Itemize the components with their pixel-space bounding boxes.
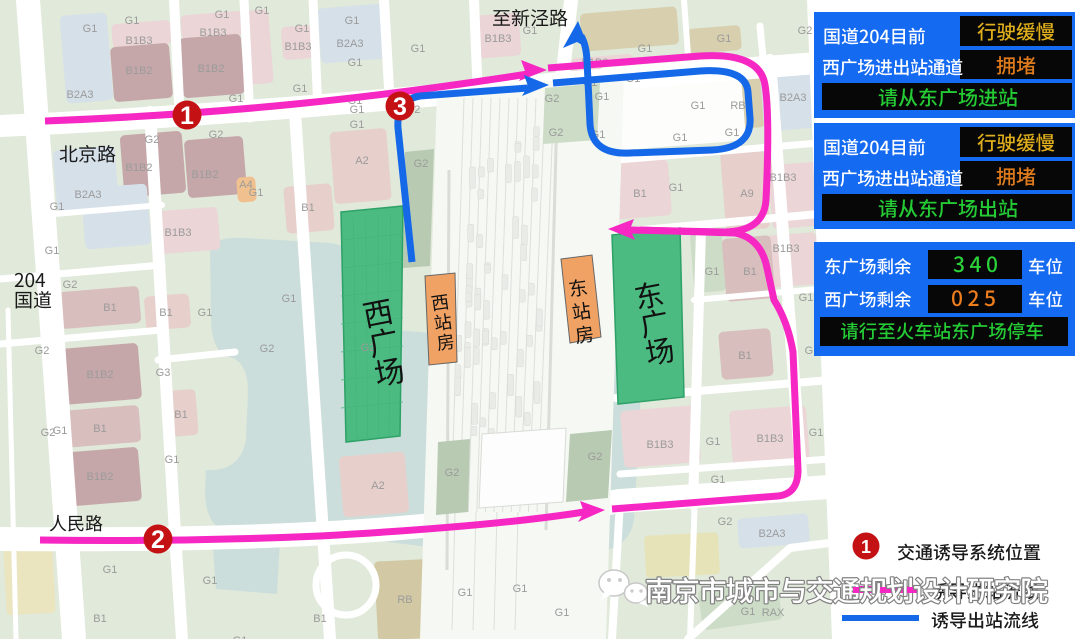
svg-text:B1: B1 [174, 409, 187, 421]
svg-text:B1: B1 [633, 188, 646, 200]
svg-text:B1B3: B1B3 [773, 243, 800, 255]
svg-text:B1: B1 [301, 202, 314, 214]
svg-text:A2: A2 [371, 480, 384, 492]
svg-text:B1: B1 [103, 302, 116, 314]
svg-text:G1: G1 [669, 182, 684, 194]
svg-text:B1B3: B1B3 [770, 172, 797, 184]
svg-text:G2: G2 [145, 134, 160, 146]
svg-text:B1: B1 [738, 350, 751, 362]
svg-text:G2: G2 [209, 129, 224, 141]
svg-text:G1: G1 [691, 100, 706, 112]
svg-text:G1: G1 [717, 33, 732, 45]
svg-text:B1B2: B1B2 [126, 162, 153, 174]
svg-text:G1: G1 [555, 607, 570, 619]
svg-text:G1: G1 [673, 132, 688, 144]
svg-text:G1: G1 [103, 564, 118, 576]
svg-text:1: 1 [180, 102, 194, 130]
svg-text:B2A3: B2A3 [337, 38, 364, 50]
svg-text:G1: G1 [705, 266, 720, 278]
svg-text:G1: G1 [50, 201, 65, 213]
svg-text:G1: G1 [53, 425, 68, 437]
svg-text:G1: G1 [198, 307, 213, 319]
svg-text:RB: RB [397, 594, 412, 606]
svg-text:RAX: RAX [762, 607, 785, 619]
svg-text:G2: G2 [445, 467, 460, 479]
svg-text:B1B3: B1B3 [485, 33, 512, 45]
svg-text:B1: B1 [313, 613, 326, 625]
svg-text:B1: B1 [93, 613, 106, 625]
svg-text:2: 2 [151, 526, 165, 554]
svg-text:G2: G2 [549, 127, 564, 139]
svg-text:B1B2: B1B2 [87, 471, 114, 483]
svg-text:G1: G1 [741, 606, 756, 618]
svg-text:B1B3: B1B3 [126, 35, 153, 47]
svg-text:G1: G1 [595, 91, 610, 103]
svg-text:B1B3: B1B3 [647, 439, 674, 451]
svg-text:B1B2: B1B2 [198, 63, 225, 75]
svg-text:G1: G1 [348, 57, 363, 69]
svg-text:3: 3 [393, 93, 407, 121]
svg-text:G3: G3 [156, 367, 171, 379]
svg-text:G2: G2 [798, 25, 813, 37]
svg-text:G1: G1 [83, 23, 98, 35]
svg-text:G1: G1 [523, 25, 538, 37]
svg-text:G1: G1 [282, 293, 297, 305]
svg-text:G2: G2 [414, 158, 429, 170]
svg-text:B1: B1 [743, 266, 756, 278]
svg-text:B1B3: B1B3 [285, 41, 312, 53]
svg-text:G2: G2 [718, 516, 733, 528]
svg-text:G1: G1 [725, 127, 740, 139]
svg-text:B2A3: B2A3 [75, 189, 102, 201]
svg-text:B2A3: B2A3 [67, 89, 94, 101]
svg-text:G1: G1 [229, 93, 244, 105]
svg-text:G1: G1 [255, 5, 270, 17]
svg-text:G1: G1 [350, 119, 365, 131]
svg-text:B1B3: B1B3 [200, 27, 227, 39]
svg-text:G1: G1 [249, 187, 264, 199]
svg-text:B1B3: B1B3 [757, 433, 784, 445]
svg-text:G2: G2 [588, 451, 603, 463]
svg-text:A9: A9 [740, 188, 753, 200]
svg-text:G1: G1 [711, 474, 726, 486]
svg-text:G1: G1 [125, 15, 140, 27]
svg-text:G1: G1 [350, 104, 365, 116]
svg-text:G2: G2 [63, 279, 78, 291]
svg-text:B1B2: B1B2 [126, 65, 153, 77]
svg-text:G2: G2 [35, 345, 50, 357]
svg-text:G1: G1 [45, 245, 60, 257]
svg-text:G1: G1 [799, 292, 814, 304]
svg-text:G1: G1 [293, 83, 308, 95]
svg-text:G1: G1 [165, 454, 180, 466]
svg-text:G2: G2 [545, 93, 560, 105]
svg-text:B1B2: B1B2 [87, 369, 114, 381]
svg-text:G1: G1 [706, 436, 721, 448]
svg-text:G1: G1 [638, 43, 653, 55]
svg-text:G1: G1 [233, 635, 248, 639]
svg-text:B1B3: B1B3 [165, 227, 192, 239]
svg-text:B1: B1 [159, 307, 172, 319]
svg-text:G1: G1 [513, 583, 528, 595]
svg-text:G1: G1 [458, 587, 473, 599]
svg-text:G1: G1 [203, 575, 218, 587]
svg-text:B2A3: B2A3 [759, 528, 786, 540]
svg-text:B2A3: B2A3 [780, 92, 807, 104]
svg-text:RB: RB [730, 100, 745, 112]
svg-text:G1: G1 [809, 427, 824, 439]
svg-text:G2: G2 [260, 343, 275, 355]
svg-text:B1B2: B1B2 [192, 169, 219, 181]
svg-text:G1: G1 [295, 23, 310, 35]
svg-text:B1: B1 [93, 423, 106, 435]
svg-text:A2: A2 [355, 155, 368, 167]
svg-text:G1: G1 [215, 9, 230, 21]
svg-text:1: 1 [861, 537, 871, 557]
svg-text:G1: G1 [411, 43, 426, 55]
svg-text:G1: G1 [345, 15, 360, 27]
